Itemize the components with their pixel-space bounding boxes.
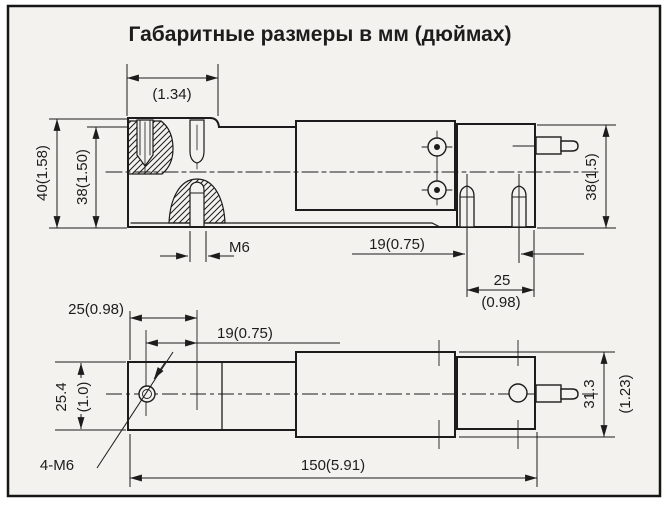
- dim-plan-width-label: 25.4: [53, 382, 70, 411]
- dimension-drawing: Габаритные размеры в мм (дюймах): [0, 0, 668, 505]
- dim-stud-to-end-label: 25: [494, 272, 511, 289]
- holes-callout-label: 4-M6: [40, 457, 74, 474]
- dim-right-height-label: 38(1.5): [583, 153, 600, 201]
- drawing-title: Габаритные размеры в мм (дюймах): [128, 23, 511, 46]
- dim-stud-to-end-inch-label: (0.98): [481, 294, 520, 311]
- dim-edge-to-hole-label: 25(0.98): [68, 301, 124, 318]
- dim-hole-spacing-label: 19(0.75): [217, 325, 273, 342]
- dim-length-label: 150(5.91): [301, 457, 365, 474]
- dim-step-height-label: 38(1.50): [74, 149, 91, 205]
- plan-hole-right: [509, 384, 527, 402]
- drawing-page: Габаритные размеры в мм (дюймах): [0, 0, 668, 505]
- boss-thread-hole: [190, 182, 204, 226]
- plan-mid-block: [296, 352, 455, 437]
- thread-m6-label: M6: [229, 239, 250, 256]
- dim-overall-height-label: 40(1.58): [34, 145, 51, 201]
- dim-top-width-label: (1.34): [152, 86, 191, 103]
- dim-plan-width-right-label: 31.3: [581, 379, 598, 408]
- dim-plan-width-inch-label: (1.0): [75, 382, 92, 413]
- dim-plan-width-right-inch-label: (1.23): [617, 374, 634, 413]
- dim-stud-spacing-side-label: 19(0.75): [369, 236, 425, 253]
- side-view: [106, 118, 600, 227]
